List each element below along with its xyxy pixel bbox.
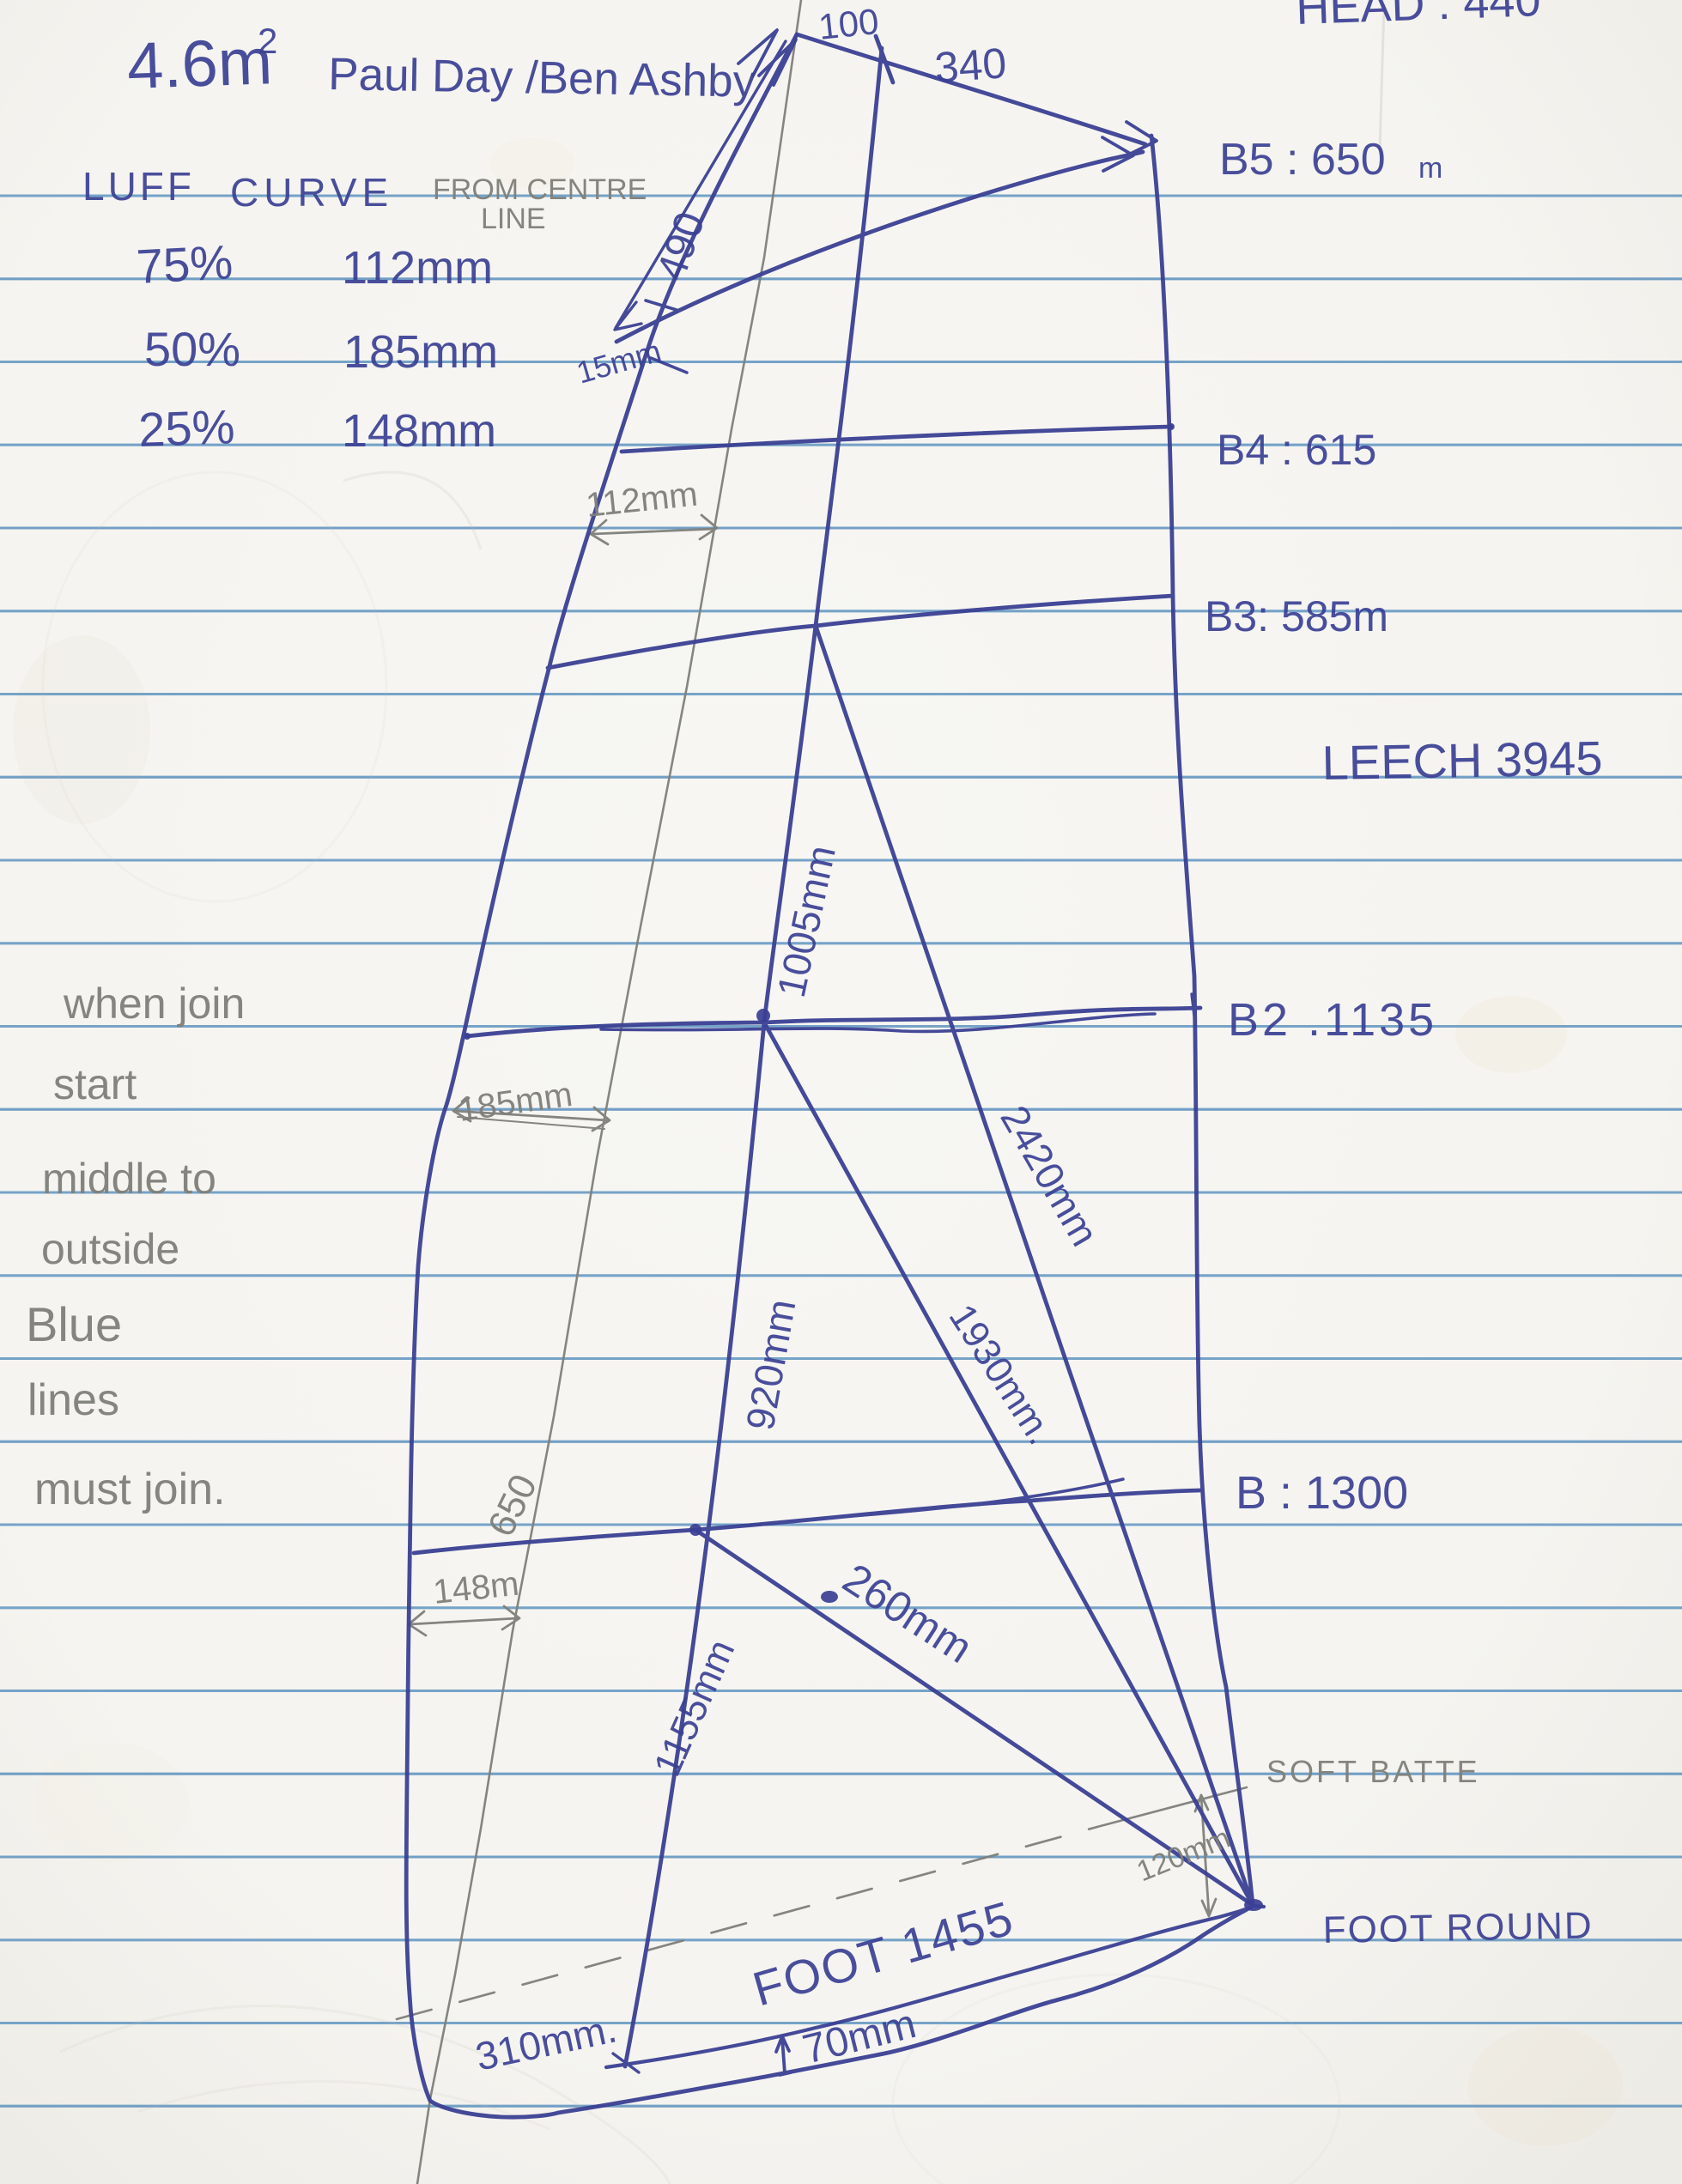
svg-text:4.6m: 4.6m	[126, 25, 274, 103]
svg-text:LINE: LINE	[481, 203, 546, 235]
svg-text:SOFT BATTE: SOFT BATTE	[1266, 1754, 1480, 1789]
svg-text:B4 : 615: B4 : 615	[1217, 426, 1376, 474]
svg-text:start: start	[53, 1060, 137, 1108]
svg-text:B3: 585m: B3: 585m	[1205, 592, 1388, 640]
svg-text:FROM CENTRE: FROM CENTRE	[433, 173, 647, 206]
svg-text:50%: 50%	[144, 322, 240, 376]
svg-text:B : 1300: B : 1300	[1236, 1467, 1408, 1519]
svg-text:Blue: Blue	[26, 1297, 122, 1351]
svg-text:LUFF: LUFF	[82, 164, 195, 209]
svg-text:m: m	[1418, 152, 1442, 185]
svg-text:outside: outside	[41, 1225, 179, 1273]
svg-text:75%: 75%	[135, 234, 234, 294]
svg-text:middle to: middle to	[42, 1155, 216, 1203]
svg-text:when join: when join	[63, 980, 245, 1028]
svg-text:lines: lines	[27, 1375, 119, 1425]
svg-text:B2 .1135: B2 .1135	[1228, 994, 1437, 1046]
svg-text:LEECH 3945: LEECH 3945	[1321, 731, 1603, 790]
svg-text:340: 340	[933, 39, 1008, 92]
svg-text:must join.: must join.	[34, 1465, 226, 1514]
svg-text:2: 2	[258, 21, 277, 61]
svg-text:FOOT ROUND: FOOT ROUND	[1322, 1905, 1594, 1951]
svg-text:148mm: 148mm	[342, 405, 496, 457]
svg-text:100: 100	[817, 1, 881, 47]
svg-text:112mm: 112mm	[342, 242, 493, 294]
svg-text:Paul Day /Ben Ashby: Paul Day /Ben Ashby	[328, 49, 756, 107]
svg-text:CURVE: CURVE	[230, 170, 393, 215]
svg-text:25%: 25%	[137, 399, 235, 457]
svg-text:185mm: 185mm	[343, 326, 498, 378]
svg-text:B5 : 650: B5 : 650	[1219, 135, 1386, 185]
